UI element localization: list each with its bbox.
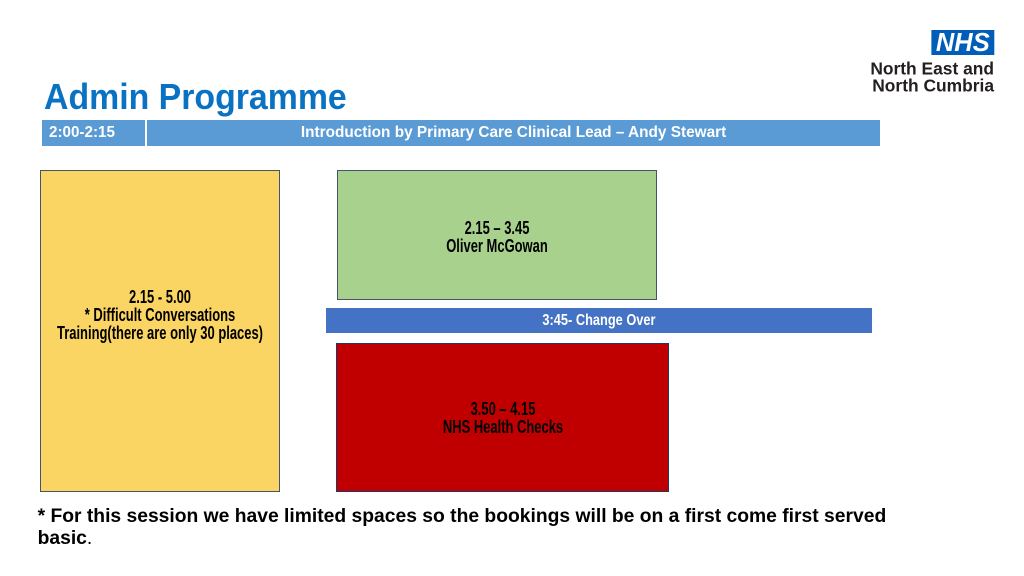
svg-text:NHS: NHS (936, 29, 990, 57)
svg-text:North Cumbria: North Cumbria (872, 76, 994, 96)
